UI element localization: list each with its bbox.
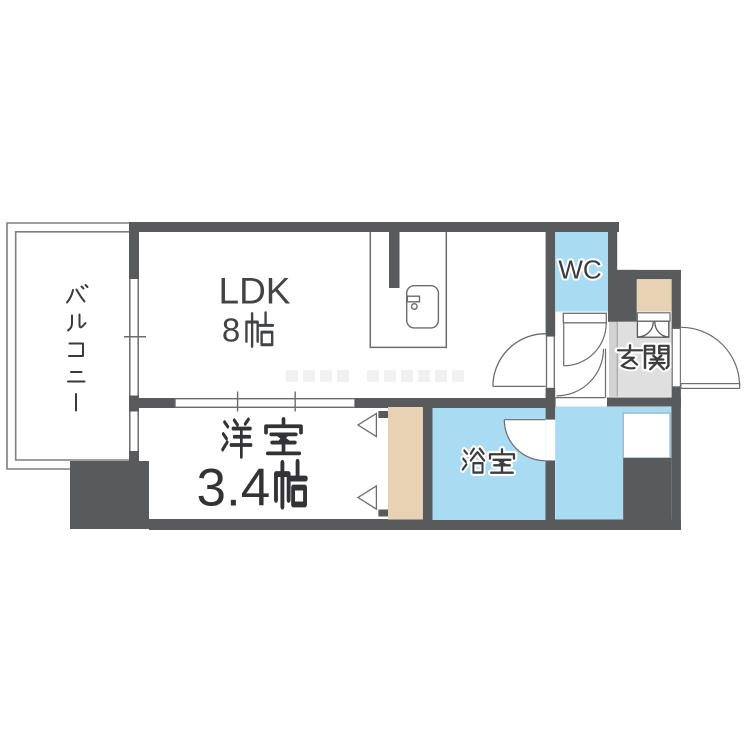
svg-text:WC: WC bbox=[558, 255, 601, 285]
svg-text:8: 8 bbox=[222, 312, 240, 349]
svg-text:3.4: 3.4 bbox=[197, 459, 271, 518]
svg-text:LDK: LDK bbox=[219, 271, 291, 312]
